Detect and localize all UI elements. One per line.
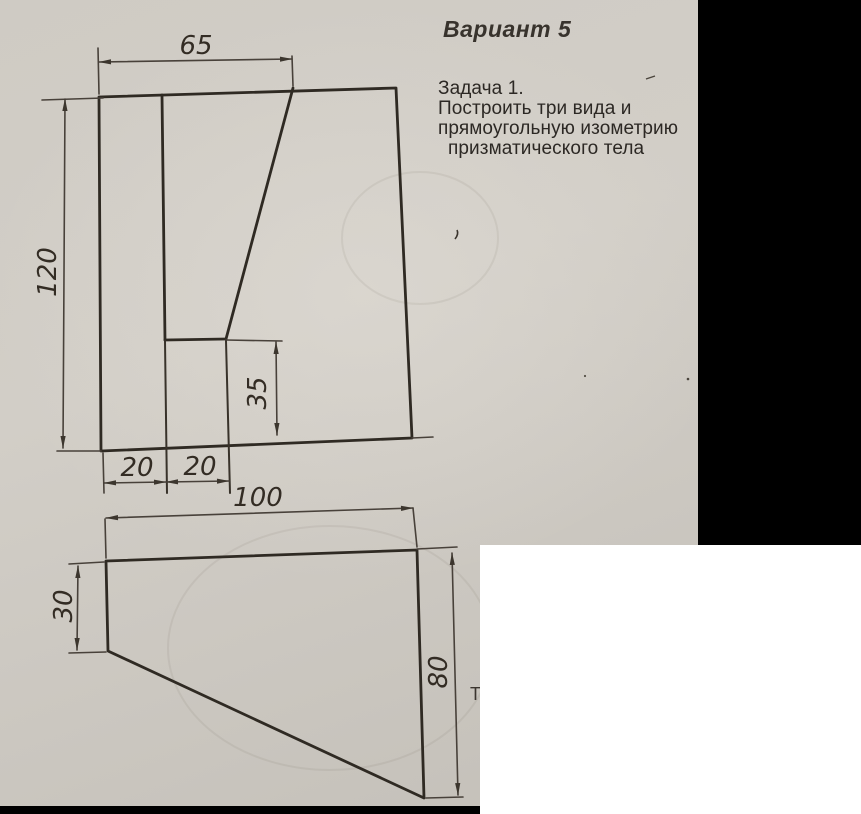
dim-100-label: 100 (233, 483, 283, 513)
task-heading: Задача 1. (438, 79, 678, 99)
dim-35-ext-top (226, 340, 282, 341)
dim-20-ext-right (226, 341, 230, 493)
variant-title: Вариант 5 (443, 16, 571, 43)
dim-30-ext-bottom (69, 652, 106, 653)
dim-30-label: 30 (49, 589, 79, 622)
task-line: призматического тела (438, 139, 678, 159)
front-view-notch-bottom-edge (165, 339, 226, 340)
task-line: прямоугольную изометрию (438, 119, 678, 139)
paper-impression-circle-top (342, 172, 498, 304)
front-view-notch-left-edge (162, 95, 165, 340)
dim-35-label: 35 (243, 376, 273, 409)
pen-mark-comma (455, 230, 458, 239)
dim-65-ext-right (292, 56, 293, 86)
crop-mask-white-bottom (480, 545, 861, 814)
pen-mark-dot-right (687, 378, 690, 381)
dim-20a-label: 20 (120, 453, 153, 483)
front-view-baseline-extension (412, 437, 433, 438)
plan-view: 100 30 80 (49, 483, 463, 798)
dim-100-ext-right (413, 508, 417, 547)
paper-impression-circle-bottom (168, 526, 492, 770)
pen-mark-dot-mid (584, 375, 586, 377)
dim-35-line (276, 342, 277, 435)
dim-65-label: 65 (179, 31, 212, 61)
worksheet-photo: 65 120 35 20 20 (0, 0, 861, 814)
front-view: 65 120 35 20 20 (33, 31, 433, 493)
dim-100-ext-left (105, 519, 106, 558)
dim-120-ext-top (42, 98, 103, 100)
dim-120-label: 120 (33, 247, 63, 297)
dim-20-ext-mid (165, 341, 167, 493)
dim-120-line (63, 99, 65, 448)
task-line: Построить три вида и (438, 99, 678, 119)
crop-mask-black-right (698, 0, 861, 545)
dim-80-label: 80 (424, 655, 454, 688)
dim-20-ext-left (103, 453, 104, 493)
dim-80-ext-bottom (426, 797, 463, 798)
front-view-notch-slant-edge (226, 88, 293, 339)
dim-65-ext-left (98, 48, 99, 94)
dim-20b-label: 20 (183, 452, 216, 482)
dim-30-ext-top (69, 562, 104, 564)
crop-mask-black-bottom-strip (0, 806, 480, 814)
task-text-block: Задача 1. Построить три вида и прямоугол… (438, 79, 678, 159)
